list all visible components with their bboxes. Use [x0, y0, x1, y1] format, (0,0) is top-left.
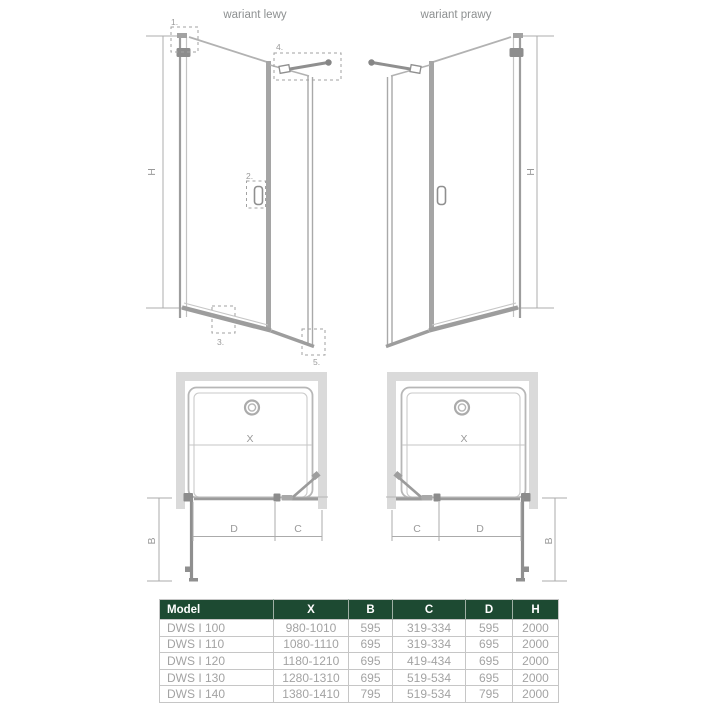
- model-cell: DWS I 120: [160, 653, 274, 670]
- header-x: X: [274, 600, 349, 620]
- b-cell: 595: [349, 620, 393, 637]
- header-h: H: [513, 600, 559, 620]
- dim-h-right: H: [525, 168, 537, 176]
- b-cell: 695: [349, 653, 393, 670]
- model-cell: DWS I 130: [160, 669, 274, 686]
- h-cell: 2000: [513, 686, 559, 703]
- dim-d-right: D: [476, 523, 484, 535]
- table-row: DWS I 130 1280-1310 695 519-534 695 2000: [160, 669, 559, 686]
- shower-door-spec-sheet: wariant lewy wariant prawy: [0, 0, 720, 720]
- model-cell: DWS I 140: [160, 686, 274, 703]
- right-plan-drawing: [386, 372, 567, 582]
- table-row: DWS I 140 1380-1410 795 519-534 795 2000: [160, 686, 559, 703]
- b-cell: 695: [349, 636, 393, 653]
- dim-d-left: D: [230, 523, 238, 535]
- dim-c-right: C: [413, 523, 421, 535]
- callout-label-4: 4.: [276, 42, 283, 52]
- b-cell: 695: [349, 669, 393, 686]
- header-model: Model: [160, 600, 274, 620]
- dim-b-left: B: [146, 537, 158, 544]
- x-cell: 1180-1210: [274, 653, 349, 670]
- table-row: DWS I 100 980-1010 595 319-334 595 2000: [160, 620, 559, 637]
- dim-b-right: B: [543, 537, 555, 544]
- c-cell: 319-334: [393, 620, 466, 637]
- dim-c-left: C: [294, 523, 302, 535]
- x-cell: 1380-1410: [274, 686, 349, 703]
- d-cell: 695: [466, 653, 513, 670]
- dimension-table: Model X B C D H DWS I 100 980-1010 595 3…: [159, 599, 559, 703]
- model-cell: DWS I 100: [160, 620, 274, 637]
- header-c: C: [393, 600, 466, 620]
- x-cell: 1080-1110: [274, 636, 349, 653]
- model-cell: DWS I 110: [160, 636, 274, 653]
- callout-label-3: 3.: [217, 337, 224, 347]
- d-cell: 695: [466, 669, 513, 686]
- d-cell: 795: [466, 686, 513, 703]
- c-cell: 519-534: [393, 686, 466, 703]
- c-cell: 419-434: [393, 653, 466, 670]
- table-header-row: Model X B C D H: [160, 600, 559, 620]
- h-cell: 2000: [513, 636, 559, 653]
- d-cell: 695: [466, 636, 513, 653]
- dim-x-right: X: [460, 433, 467, 445]
- table-row: DWS I 110 1080-1110 695 319-334 695 2000: [160, 636, 559, 653]
- h-cell: 2000: [513, 620, 559, 637]
- left-plan-drawing: [147, 372, 328, 582]
- x-cell: 1280-1310: [274, 669, 349, 686]
- callout-label-5: 5.: [313, 357, 320, 367]
- header-b: B: [349, 600, 393, 620]
- h-cell: 2000: [513, 669, 559, 686]
- h-cell: 2000: [513, 653, 559, 670]
- right-elevation-drawing: [368, 33, 554, 347]
- table-row: DWS I 120 1180-1210 695 419-434 695 2000: [160, 653, 559, 670]
- header-d: D: [466, 600, 513, 620]
- x-cell: 980-1010: [274, 620, 349, 637]
- b-cell: 795: [349, 686, 393, 703]
- dim-x-left: X: [246, 433, 253, 445]
- callout-label-2: 2.: [246, 171, 253, 181]
- c-cell: 319-334: [393, 636, 466, 653]
- callout-label-1: 1.: [171, 17, 178, 27]
- c-cell: 519-534: [393, 669, 466, 686]
- d-cell: 595: [466, 620, 513, 637]
- left-elevation-drawing: [146, 33, 332, 347]
- dim-h-left: H: [146, 168, 158, 176]
